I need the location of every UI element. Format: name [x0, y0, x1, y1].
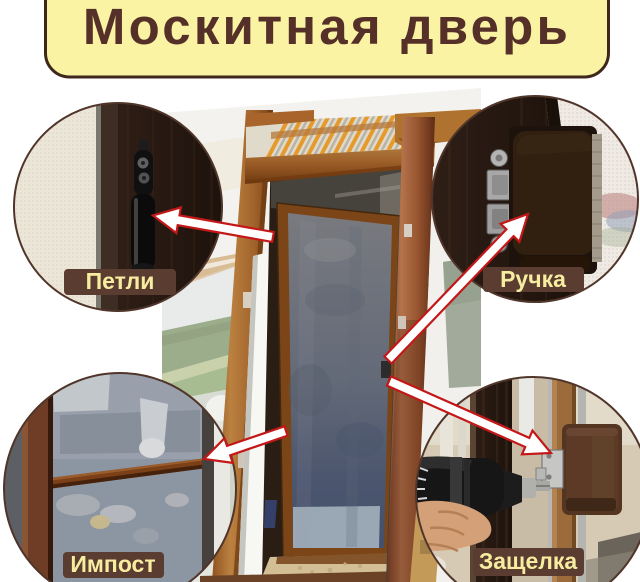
- svg-text:Москитная дверь: Москитная дверь: [83, 0, 571, 55]
- svg-text:Импост: Импост: [70, 551, 155, 577]
- svg-text:Петли: Петли: [86, 268, 155, 294]
- svg-text:Защелка: Защелка: [479, 548, 578, 574]
- svg-text:Ручка: Ручка: [500, 266, 566, 292]
